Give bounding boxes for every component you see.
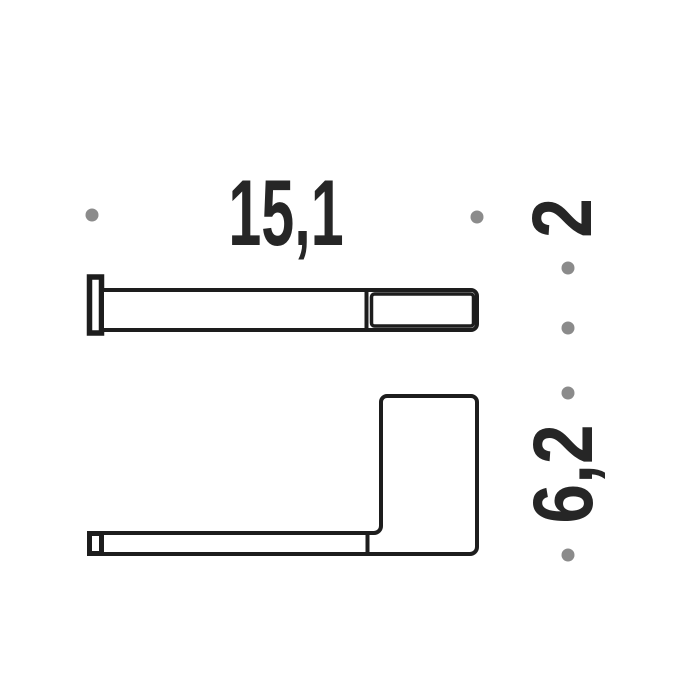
dimension-label-width: 15,1 [228, 166, 343, 260]
top-view-wall-flange [90, 277, 102, 333]
side-view-bar-tip [90, 534, 102, 554]
product-dimension-drawing [0, 0, 700, 700]
side-view [90, 396, 478, 554]
technical-drawing-canvas: 15,1 2 6,2 [0, 0, 700, 700]
dimension-dot [562, 387, 575, 400]
dimension-dot [86, 209, 99, 222]
dimension-dot [562, 322, 575, 335]
dimension-dot [562, 262, 575, 275]
dimension-label-depth: 2 [520, 198, 604, 238]
dimension-dot [562, 549, 575, 562]
dimension-label-height: 6,2 [521, 424, 605, 523]
side-view-outline [104, 396, 477, 554]
top-view [90, 277, 478, 333]
dimension-dot [471, 211, 484, 224]
top-view-bar-outline [104, 290, 477, 330]
